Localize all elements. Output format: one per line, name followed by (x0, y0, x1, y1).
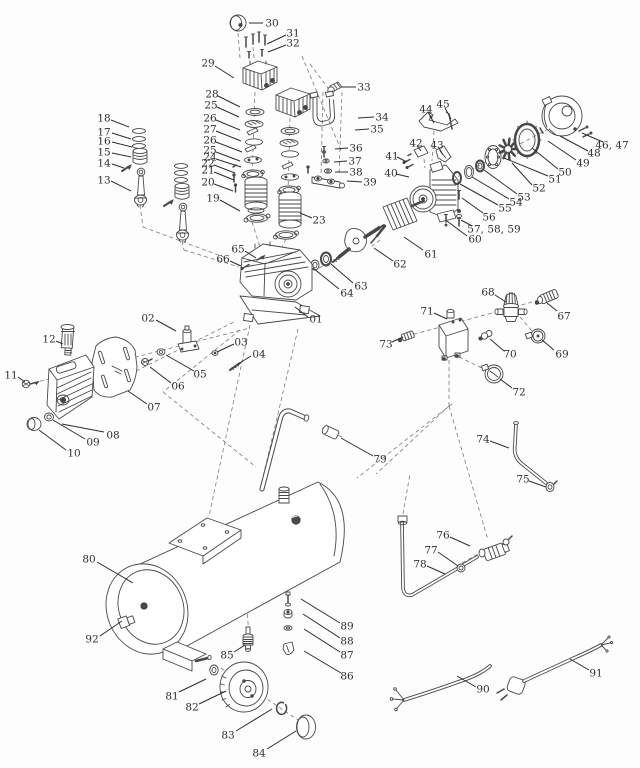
part-label-77: 77 (424, 545, 437, 557)
leader-line-67 (547, 303, 557, 311)
valve-plate-stack-1 (242, 109, 265, 179)
leader-line-16 (112, 142, 132, 147)
part-13-connecting-rod-1 (135, 168, 147, 207)
leader-line-79 (341, 438, 373, 456)
part-85-drain-valve (243, 627, 253, 651)
leader-line-76 (450, 537, 470, 546)
leader-line-40 (396, 174, 409, 177)
part-label-07: 07 (147, 402, 160, 414)
part-label-69: 69 (555, 349, 568, 361)
part-label-65: 65 (231, 244, 244, 256)
part-09-washer (45, 413, 54, 421)
leader-line-52 (512, 163, 532, 185)
parts-57-58-59-bolt-washers (457, 210, 462, 227)
leader-line-61 (404, 237, 423, 250)
leader-line-68 (495, 295, 506, 302)
leader-line-53 (484, 170, 517, 194)
leader-line-72 (500, 379, 512, 388)
part-label-86: 86 (340, 671, 354, 683)
part-label-01: 01 (309, 314, 322, 326)
part-label-10: 10 (67, 448, 80, 460)
leader-line-60 (447, 221, 467, 236)
leader-line-66 (230, 261, 241, 266)
part-label-28: 28 (205, 89, 218, 101)
part-label-29: 29 (201, 58, 214, 70)
part-label-68: 68 (481, 287, 494, 299)
leader-line-70 (490, 339, 504, 351)
part-label-70: 70 (503, 349, 516, 361)
part-label-55: 55 (498, 203, 511, 215)
part-48-end-bell (542, 96, 582, 136)
leader-line-34 (358, 117, 374, 118)
cylinder-1 (245, 177, 267, 213)
part-01-crankcase (240, 242, 320, 324)
part-84-hub-cap (297, 715, 316, 739)
leader-line-49 (548, 141, 576, 160)
part-62-crankshaft (333, 225, 384, 262)
leader-line-77 (438, 552, 458, 566)
part-label-13: 13 (97, 175, 110, 187)
part-02-breather (178, 326, 199, 352)
part-label-33: 33 (357, 82, 370, 94)
part-label-71: 71 (420, 306, 433, 318)
wrist-pin-2 (164, 200, 173, 206)
part-63-bearing (321, 253, 331, 266)
part-label-08: 08 (106, 430, 119, 442)
part-label-49: 49 (576, 158, 589, 170)
air-compressor-exploded-parts-diagram: 0102030405060708091011121314151617181920… (0, 0, 640, 768)
leader-line-06 (150, 367, 171, 383)
part-07-bracket (92, 337, 137, 397)
leader-line-87 (304, 629, 340, 652)
part-label-40: 40 (384, 168, 397, 180)
part-72-gauge (481, 364, 503, 383)
part-label-74: 74 (476, 434, 490, 446)
leader-line-23 (300, 213, 312, 218)
part-label-02: 02 (141, 313, 154, 325)
leader-line-89 (301, 599, 340, 623)
part-76-check-valve (479, 536, 512, 561)
part-38-washer (324, 169, 331, 173)
part-label-03: 03 (234, 337, 247, 349)
leader-line-03 (217, 344, 234, 352)
part-label-51: 51 (548, 174, 561, 186)
part-03-nut (212, 351, 218, 356)
leader-line-11 (18, 377, 25, 382)
part-51-stator-winding (485, 146, 501, 169)
leader-line-10 (39, 430, 66, 450)
part-88-nut (284, 610, 292, 619)
leader-line-85 (234, 645, 245, 652)
part-label-91: 91 (589, 668, 602, 680)
leader-line-56 (462, 198, 483, 213)
part-label-80: 80 (82, 554, 95, 566)
leader-line-17 (112, 133, 131, 139)
leader-line-86 (304, 651, 341, 673)
part-30-cap (230, 15, 246, 31)
piston-group (122, 129, 189, 242)
part-label-64: 64 (340, 288, 354, 300)
part-67-quick-coupler (535, 289, 559, 304)
connecting-rod-2 (177, 203, 189, 242)
leader-line-26 (216, 120, 240, 130)
part-label-78: 78 (413, 559, 426, 571)
part-label-88: 88 (340, 636, 353, 648)
part-61-rotor (371, 198, 425, 243)
part-label-12: 12 (42, 334, 55, 346)
part-label-87: 87 (340, 650, 353, 662)
part-87-washer (284, 626, 292, 631)
leader-line-15 (112, 153, 131, 157)
handle-tube (262, 411, 309, 489)
leader-line-26 (216, 142, 242, 152)
part-label-05: 05 (193, 369, 206, 381)
part-54-ring (465, 166, 474, 179)
part-label-34: 34 (375, 112, 389, 124)
leader-line-51 (504, 158, 548, 176)
part-08-air-filter-housing (47, 355, 94, 419)
leader-line-37 (334, 161, 347, 162)
part-label-25: 25 (204, 100, 217, 112)
leader-line-81 (179, 679, 206, 692)
leader-line-55 (460, 184, 498, 205)
part-label-62: 62 (393, 259, 406, 271)
leader-line-36 (335, 148, 348, 149)
part-10-cap (27, 418, 41, 431)
part-80-tank (92, 482, 344, 671)
parts-16-17-18-piston-rings-1 (133, 129, 146, 149)
part-label-75: 75 (516, 474, 529, 486)
leader-line-09 (53, 420, 85, 439)
leader-line-22 (214, 165, 235, 173)
part-81-washer (210, 665, 218, 675)
piston-2 (175, 183, 189, 199)
part-label-36: 36 (349, 143, 363, 155)
leader-line-74 (490, 441, 509, 448)
piston-rings-2 (175, 164, 188, 183)
parts-31-32-head-bolts (245, 32, 267, 58)
part-83-retaining-ring (277, 702, 287, 714)
leader-line-32 (268, 45, 286, 52)
part-label-67: 67 (557, 311, 570, 323)
part-label-20: 20 (201, 177, 214, 189)
part-label-19: 19 (206, 193, 219, 205)
leader-line-07 (128, 391, 147, 404)
leader-line-05 (166, 355, 194, 371)
part-label-60: 60 (468, 234, 481, 246)
part-39-manifold (312, 176, 345, 188)
cords-group (390, 636, 612, 711)
part-label-11: 11 (4, 370, 17, 382)
part-label-92: 92 (85, 634, 98, 646)
leader-line-88 (303, 614, 340, 638)
leader-line-08 (62, 424, 104, 432)
part-label-84: 84 (252, 748, 266, 760)
leader-line-29 (215, 66, 234, 78)
cylinder-gasket-2 (274, 231, 299, 239)
page: 0102030405060708091011121314151617181920… (0, 0, 640, 768)
leader-line-20 (214, 184, 233, 191)
part-36-bolt (322, 147, 326, 158)
part-label-06: 06 (171, 381, 185, 393)
part-40-motor-housing (410, 161, 458, 222)
part-77-nut (457, 564, 465, 572)
control-group (398, 289, 559, 383)
part-label-39: 39 (363, 177, 376, 189)
part-70-fitting (479, 331, 492, 341)
pump-group (240, 225, 384, 324)
part-label-38: 38 (349, 167, 362, 179)
leader-line-48 (560, 136, 588, 151)
part-label-76: 76 (436, 530, 450, 542)
part-37-washer (323, 159, 329, 163)
part-label-23: 23 (312, 215, 325, 227)
part-label-82: 82 (185, 702, 198, 714)
part-label-85: 85 (220, 650, 233, 662)
part-label-63: 63 (354, 281, 367, 293)
part-label-72: 72 (512, 387, 525, 399)
part-label-18: 18 (97, 113, 110, 125)
part-label-73: 73 (379, 339, 392, 351)
part-68-regulator (495, 292, 527, 321)
part-label-45: 45 (436, 99, 449, 111)
part-label-09: 09 (86, 437, 99, 449)
leader-line-13 (111, 181, 131, 191)
leader-line-50 (532, 148, 558, 169)
parts-46-47-screws (579, 126, 592, 137)
tank-group (92, 411, 557, 671)
cylinder-gasket-1 (244, 214, 270, 222)
part-label-52: 52 (532, 183, 545, 195)
part-label-44: 44 (419, 104, 433, 116)
part-69-gauge (525, 329, 545, 343)
part-86-clip (283, 642, 294, 655)
part-06-bolt (142, 359, 153, 366)
leader-line-54 (472, 177, 509, 199)
leader-line-18 (111, 120, 129, 127)
leader-line-04 (238, 356, 251, 364)
part-79-handle-grip (321, 425, 339, 440)
part-label-15: 15 (97, 147, 110, 159)
part-label-27: 27 (203, 124, 216, 136)
part-label-04: 04 (252, 349, 266, 361)
leader-line-31 (267, 35, 286, 44)
part-15-piston-1 (133, 148, 147, 164)
part-label-35: 35 (370, 124, 383, 136)
part-29-cylinder-head-1 (243, 61, 277, 90)
part-50-stator-ring (513, 121, 541, 159)
cylinder-head-2 (276, 88, 310, 117)
leader-line-39 (347, 181, 362, 182)
part-label-66: 66 (216, 254, 230, 266)
part-label-32: 32 (286, 38, 299, 50)
leader-line-62 (374, 248, 393, 261)
part-label-90: 90 (476, 684, 489, 696)
part-label-14: 14 (97, 158, 111, 170)
leader-line-19 (220, 200, 240, 211)
leader-line-84 (267, 731, 296, 749)
part-label-61: 61 (424, 249, 437, 261)
leader-line-25 (217, 107, 239, 117)
part-label-89: 89 (340, 621, 353, 633)
part-label-26: 26 (203, 135, 217, 147)
part-12-filter-element (61, 325, 75, 356)
leader-line-28 (218, 96, 240, 107)
leader-line-64 (313, 268, 339, 289)
leader-line-71 (434, 313, 447, 319)
part-label-41: 41 (385, 151, 398, 163)
leader-line-63 (331, 264, 353, 283)
plumbing-group (398, 516, 512, 595)
leader-line-35 (355, 129, 369, 130)
part-82-wheel (220, 662, 268, 712)
leader-line-02 (156, 320, 176, 331)
leader-line-69 (542, 340, 554, 350)
part-90-power-cord (390, 666, 490, 711)
leader-line-21 (214, 172, 234, 180)
part-label-30: 30 (265, 18, 278, 30)
part-23-cylinder-2 (279, 192, 301, 228)
part-05-washer (157, 349, 165, 355)
part-89-bolt (285, 592, 290, 606)
part-label-83: 83 (221, 730, 234, 742)
part-label-17: 17 (97, 127, 110, 139)
part-label-79: 79 (373, 454, 386, 466)
part-label-81: 81 (165, 691, 178, 703)
part-73-fitting (398, 331, 415, 342)
leader-line-27 (216, 131, 241, 141)
leader-line-78 (427, 566, 445, 574)
part-label-42: 42 (409, 138, 422, 150)
part-label-43: 43 (430, 140, 443, 152)
leader-line-91 (570, 659, 589, 670)
leader-line-14 (112, 164, 124, 168)
part-label-56: 56 (482, 212, 496, 224)
